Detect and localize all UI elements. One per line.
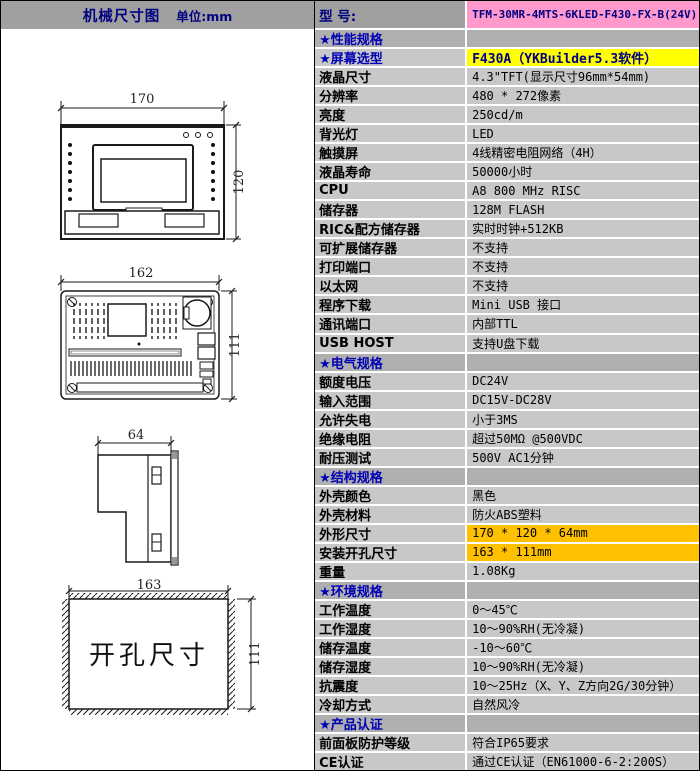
spec-label: 绝缘电阻 bbox=[315, 430, 467, 447]
spec-value: 4线精密电阻网络（4H） bbox=[467, 144, 699, 161]
spec-value bbox=[467, 354, 699, 371]
spec-value: Mini USB 接口 bbox=[467, 296, 699, 313]
spec-value: 128M FLASH bbox=[467, 201, 699, 218]
spec-value: 250cd/m bbox=[467, 106, 699, 123]
spec-value: 50000小时 bbox=[467, 163, 699, 180]
spec-label: ★结构规格 bbox=[315, 468, 467, 485]
spec-label: 打印端口 bbox=[315, 258, 467, 275]
spec-value: 自然风冷 bbox=[467, 696, 699, 713]
rear-height-dim: 111 bbox=[228, 333, 243, 358]
spec-value: 不支持 bbox=[467, 258, 699, 275]
spec-row: ★屏幕选型 F430A（YKBuilder5.3软件） bbox=[315, 47, 699, 66]
mechanical-header: 机械尺寸图 单位:mm bbox=[1, 1, 314, 31]
spec-label: 储存温度 bbox=[315, 639, 467, 656]
unit-label: 单位:mm bbox=[176, 6, 232, 25]
rear-view-drawing: 162 bbox=[41, 263, 301, 433]
spec-value: 实时时钟+512KB bbox=[467, 220, 699, 237]
spec-value: 0～45℃ bbox=[467, 601, 699, 618]
spec-label: 工作湿度 bbox=[315, 620, 467, 637]
spec-value bbox=[467, 715, 699, 732]
cutout-label: 开孔尺寸 bbox=[89, 641, 209, 671]
spec-row: 外壳材料 防火ABS塑料 bbox=[315, 504, 699, 523]
front-width-dim: 170 bbox=[130, 92, 155, 107]
spec-row: 液晶尺寸 4.3"TFT(显示尺寸96mm*54mm) bbox=[315, 66, 699, 85]
spec-label: 储存器 bbox=[315, 201, 467, 218]
spec-value: 超过50MΩ @500VDC bbox=[467, 430, 699, 447]
spec-row: 抗震度 10～25Hz（X、Y、Z方向2G/30分钟） bbox=[315, 675, 699, 694]
spec-label: 液晶寿命 bbox=[315, 163, 467, 180]
spec-row: 工作温度 0～45℃ bbox=[315, 599, 699, 618]
spec-label: 以太网 bbox=[315, 277, 467, 294]
spec-label: CPU bbox=[315, 182, 467, 199]
spec-value: A8 800 MHz RISC bbox=[467, 182, 699, 199]
spec-value: 163 * 111mm bbox=[467, 544, 699, 561]
spec-label: 前面板防护等级 bbox=[315, 734, 467, 751]
spec-label: 耐压测试 bbox=[315, 449, 467, 466]
spec-value: 500V AC1分钟 bbox=[467, 449, 699, 466]
side-view-drawing: 64 bbox=[41, 427, 301, 577]
spec-value: 黑色 bbox=[467, 487, 699, 504]
spec-row: 允许失电 小于3MS bbox=[315, 409, 699, 428]
drawing-area: 170 bbox=[1, 31, 314, 770]
spec-row: CPU A8 800 MHz RISC bbox=[315, 180, 699, 199]
spec-row: ★性能规格 bbox=[315, 28, 699, 47]
mechanical-title: 机械尺寸图 bbox=[83, 5, 161, 26]
spec-value: 小于3MS bbox=[467, 411, 699, 428]
spec-label: 通讯端口 bbox=[315, 315, 467, 332]
spec-row: 耐压测试 500V AC1分钟 bbox=[315, 447, 699, 466]
spec-label: USB HOST bbox=[315, 335, 467, 352]
spec-label: CE认证 bbox=[315, 753, 467, 770]
spec-value: LED bbox=[467, 125, 699, 142]
spec-label: 冷却方式 bbox=[315, 696, 467, 713]
front-view-drawing: 170 bbox=[41, 87, 301, 257]
spec-label: ★产品认证 bbox=[315, 715, 467, 732]
spec-label: 亮度 bbox=[315, 106, 467, 123]
spec-label: 可扩展储存器 bbox=[315, 239, 467, 256]
spec-row: 以太网 不支持 bbox=[315, 275, 699, 294]
spec-row: 可扩展储存器 不支持 bbox=[315, 237, 699, 256]
spec-value: 不支持 bbox=[467, 277, 699, 294]
spec-label: 重量 bbox=[315, 563, 467, 580]
spec-label: ★电气规格 bbox=[315, 354, 467, 371]
spec-label: 外壳颜色 bbox=[315, 487, 467, 504]
model-row: 型 号: TFM-30MR-4MTS-6KLED-F430-FX-B(24V) bbox=[315, 1, 699, 28]
front-height-dim: 120 bbox=[232, 170, 247, 195]
spec-table: 型 号: TFM-30MR-4MTS-6KLED-F430-FX-B(24V) … bbox=[314, 1, 699, 770]
spec-value: DC24V bbox=[467, 373, 699, 390]
spec-row: 程序下载 Mini USB 接口 bbox=[315, 294, 699, 313]
spec-row: ★环境规格 bbox=[315, 580, 699, 599]
spec-label: 程序下载 bbox=[315, 296, 467, 313]
spec-value: 支持U盘下载 bbox=[467, 335, 699, 352]
spec-row: 外形尺寸 170 * 120 * 64mm bbox=[315, 523, 699, 542]
spec-label: 触摸屏 bbox=[315, 144, 467, 161]
model-value: TFM-30MR-4MTS-6KLED-F430-FX-B(24V) bbox=[467, 1, 699, 28]
spec-row: 输入范围 DC15V-DC28V bbox=[315, 390, 699, 409]
spec-row: 前面板防护等级 符合IP65要求 bbox=[315, 732, 699, 751]
spec-label: ★性能规格 bbox=[315, 30, 467, 47]
spec-value: F430A（YKBuilder5.3软件） bbox=[467, 49, 699, 66]
spec-value: -10～60℃ bbox=[467, 639, 699, 656]
spec-value bbox=[467, 30, 699, 47]
spec-value: 符合IP65要求 bbox=[467, 734, 699, 751]
spec-label: 额度电压 bbox=[315, 373, 467, 390]
spec-row: ★结构规格 bbox=[315, 466, 699, 485]
spec-label: 分辨率 bbox=[315, 87, 467, 104]
spec-row: 安装开孔尺寸 163 * 111mm bbox=[315, 542, 699, 561]
spec-value: 10～90%RH(无冷凝) bbox=[467, 620, 699, 637]
rear-width-dim: 162 bbox=[129, 266, 154, 281]
spec-row: 分辨率 480 * 272像素 bbox=[315, 85, 699, 104]
spec-row: ★电气规格 bbox=[315, 352, 699, 371]
spec-row: 储存器 128M FLASH bbox=[315, 199, 699, 218]
spec-row: 储存温度 -10～60℃ bbox=[315, 637, 699, 656]
spec-row: 额度电压 DC24V bbox=[315, 371, 699, 390]
spec-value bbox=[467, 468, 699, 485]
spec-row: CE认证 通过CE认证（EN61000-6-2:200S） bbox=[315, 751, 699, 770]
spec-value: 防火ABS塑料 bbox=[467, 506, 699, 523]
spec-row: 重量 1.08Kg bbox=[315, 561, 699, 580]
spec-value: 1.08Kg bbox=[467, 563, 699, 580]
spec-row: USB HOST 支持U盘下载 bbox=[315, 333, 699, 352]
spec-value: 4.3"TFT(显示尺寸96mm*54mm) bbox=[467, 68, 699, 85]
spec-row: 背光灯 LED bbox=[315, 123, 699, 142]
spec-row: 储存湿度 10～90%RH(无冷凝) bbox=[315, 656, 699, 675]
spec-label: 储存湿度 bbox=[315, 658, 467, 675]
spec-row: ★产品认证 bbox=[315, 713, 699, 732]
spec-value: DC15V-DC28V bbox=[467, 392, 699, 409]
spec-value: 170 * 120 * 64mm bbox=[467, 525, 699, 542]
spec-label: ★环境规格 bbox=[315, 582, 467, 599]
spec-row: 通讯端口 内部TTL bbox=[315, 313, 699, 332]
side-depth-dim: 64 bbox=[128, 428, 145, 443]
spec-label: 外形尺寸 bbox=[315, 525, 467, 542]
spec-label: 液晶尺寸 bbox=[315, 68, 467, 85]
spec-value: 10～25Hz（X、Y、Z方向2G/30分钟） bbox=[467, 677, 699, 694]
spec-row: 液晶寿命 50000小时 bbox=[315, 161, 699, 180]
spec-label: 工作温度 bbox=[315, 601, 467, 618]
spec-value bbox=[467, 582, 699, 599]
spec-row: 工作湿度 10～90%RH(无冷凝) bbox=[315, 618, 699, 637]
spec-row: 绝缘电阻 超过50MΩ @500VDC bbox=[315, 428, 699, 447]
spec-sheet-page: 机械尺寸图 单位:mm 170 bbox=[0, 0, 700, 771]
spec-value: 内部TTL bbox=[467, 315, 699, 332]
spec-label: ★屏幕选型 bbox=[315, 49, 467, 66]
spec-label: 背光灯 bbox=[315, 125, 467, 142]
spec-value: 不支持 bbox=[467, 239, 699, 256]
mechanical-panel: 机械尺寸图 单位:mm 170 bbox=[1, 1, 314, 770]
spec-row: 亮度 250cd/m bbox=[315, 104, 699, 123]
spec-row: 触摸屏 4线精密电阻网络（4H） bbox=[315, 142, 699, 161]
spec-label: 外壳材料 bbox=[315, 506, 467, 523]
cutout-drawing: 163 开孔尺寸 111 bbox=[41, 577, 316, 742]
spec-value: 10～90%RH(无冷凝) bbox=[467, 658, 699, 675]
spec-row: RIC&配方储存器 实时时钟+512KB bbox=[315, 218, 699, 237]
spec-value: 通过CE认证（EN61000-6-2:200S） bbox=[467, 753, 699, 770]
cutout-height-dim: 111 bbox=[248, 642, 263, 667]
spec-row: 冷却方式 自然风冷 bbox=[315, 694, 699, 713]
spec-label: 安装开孔尺寸 bbox=[315, 544, 467, 561]
model-label: 型 号: bbox=[315, 1, 467, 28]
spec-label: 允许失电 bbox=[315, 411, 467, 428]
spec-label: RIC&配方储存器 bbox=[315, 220, 467, 237]
spec-row: 外壳颜色 黑色 bbox=[315, 485, 699, 504]
spec-value: 480 * 272像素 bbox=[467, 87, 699, 104]
spec-label: 输入范围 bbox=[315, 392, 467, 409]
spec-label: 抗震度 bbox=[315, 677, 467, 694]
spec-row: 打印端口 不支持 bbox=[315, 256, 699, 275]
